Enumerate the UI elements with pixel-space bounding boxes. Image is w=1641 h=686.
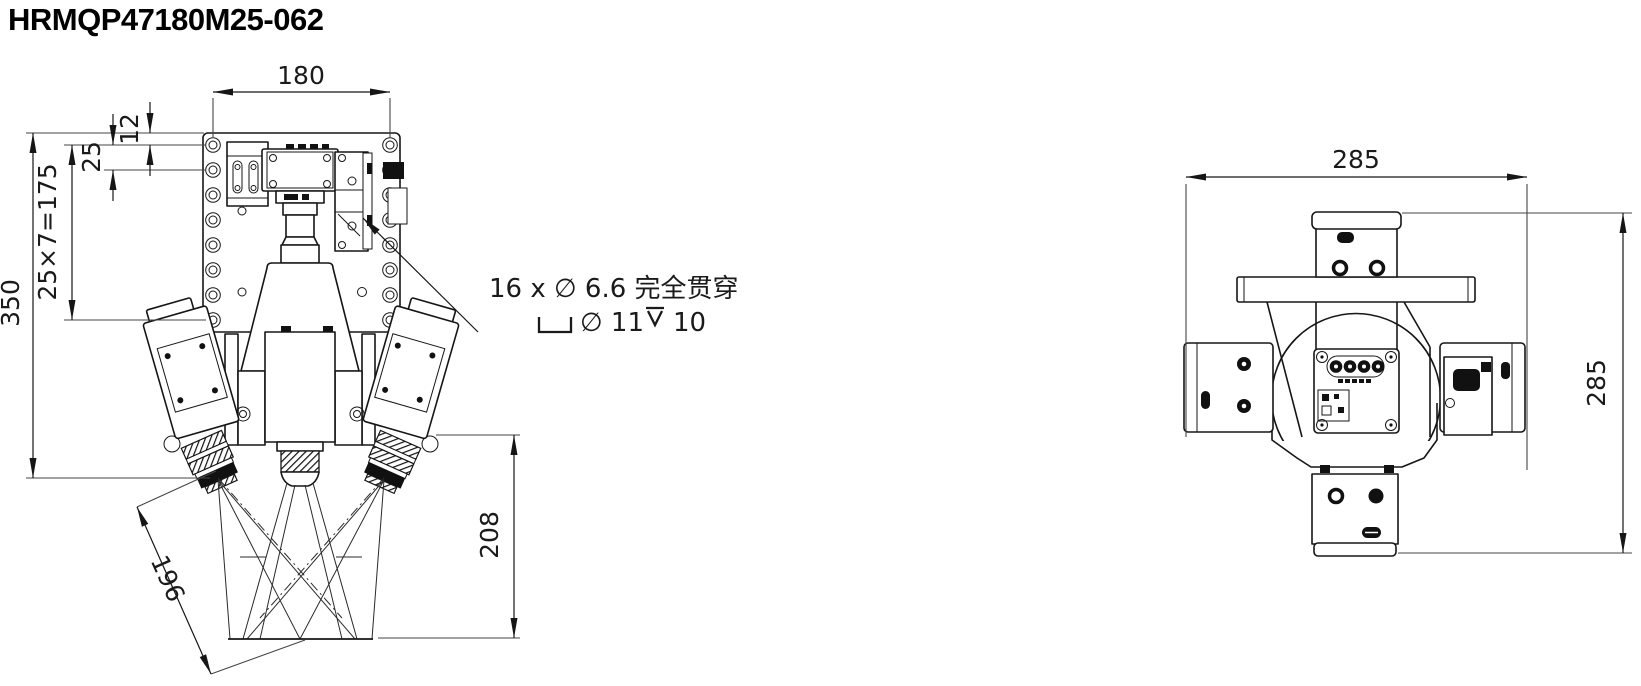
dim-top-width: 180 [277,61,325,90]
top-camera [1312,212,1401,277]
front-view: 180 12 25 25×7=175 350 208 [0,61,739,674]
light-cones [218,478,384,639]
counterbore-icon [539,317,571,332]
callout-depth: 10 [673,308,706,338]
motor-box [262,144,338,191]
power-connector [383,162,404,179]
dim-hole-pattern: 25×7=175 [33,163,62,300]
projector-body [265,326,335,442]
side-bracket [335,152,372,251]
technical-drawing: 180 12 25 25×7=175 350 208 [0,0,1641,686]
connector-block [388,188,407,224]
depth-icon [646,308,664,325]
side-view: 285 285 [1184,145,1632,556]
dim-overall-height: 350 [0,279,25,327]
projector-lens [277,442,323,486]
connector-panel [1314,349,1399,433]
side-right-camera [1440,343,1525,435]
callout-line1: 16 x ∅ 6.6 完全贯穿 [489,274,739,304]
dim-working-distance: 208 [475,511,504,559]
housing-nub-left [1320,465,1330,473]
side-left-camera [1184,343,1273,432]
crossbar [1237,277,1475,302]
dim-side-height: 285 [1582,359,1611,407]
dim-side-width: 285 [1332,145,1380,174]
dim-camera-axis: 196 [145,551,191,606]
housing-nub-right [1384,465,1394,473]
bottom-camera [1312,474,1398,556]
callout-counterbore-dia: ∅ 11 [580,308,644,338]
dip-switch-row [1338,379,1371,383]
dim-top-offset: 12 [115,113,144,145]
dim-hole-pitch: 25 [77,141,106,173]
drawing-page: HRMQP47180M25-062 [0,0,1641,686]
